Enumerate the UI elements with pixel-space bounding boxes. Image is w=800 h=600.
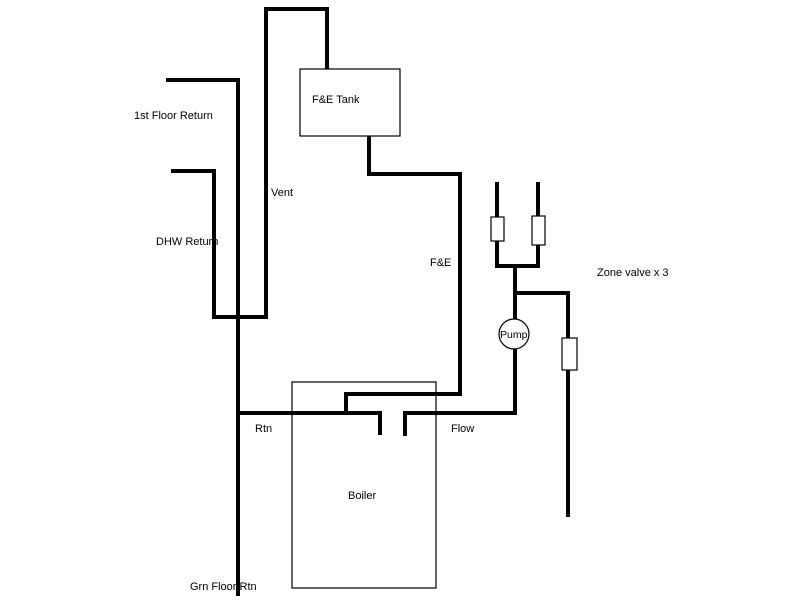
fe-pipe xyxy=(346,136,460,415)
flow-label: Flow xyxy=(451,423,474,435)
first-floor-return-label: 1st Floor Return xyxy=(134,110,213,122)
fe-tank-label: F&E Tank xyxy=(312,94,360,106)
first-floor-return-pipe xyxy=(166,80,238,596)
rtn-label: Rtn xyxy=(255,423,272,435)
pump-label: Pump xyxy=(500,329,528,341)
heating-system-schematic: 1st Floor Return Vent DHW Return F&E Tan… xyxy=(0,0,800,600)
grn-floor-rtn-label: Grn Floor Rtn xyxy=(190,581,257,593)
vent-label: Vent xyxy=(271,187,293,199)
boiler-label: Boiler xyxy=(348,490,376,502)
dhw-return-label: DHW Return xyxy=(156,236,218,248)
zone-valve-2-box xyxy=(532,216,545,245)
fe-pipe-label: F&E xyxy=(430,257,451,269)
zone-valve-1-box xyxy=(491,217,504,241)
vent-pipe xyxy=(266,9,327,319)
zone-valve-label: Zone valve x 3 xyxy=(597,267,669,279)
zone-valve-3-box xyxy=(562,338,577,370)
